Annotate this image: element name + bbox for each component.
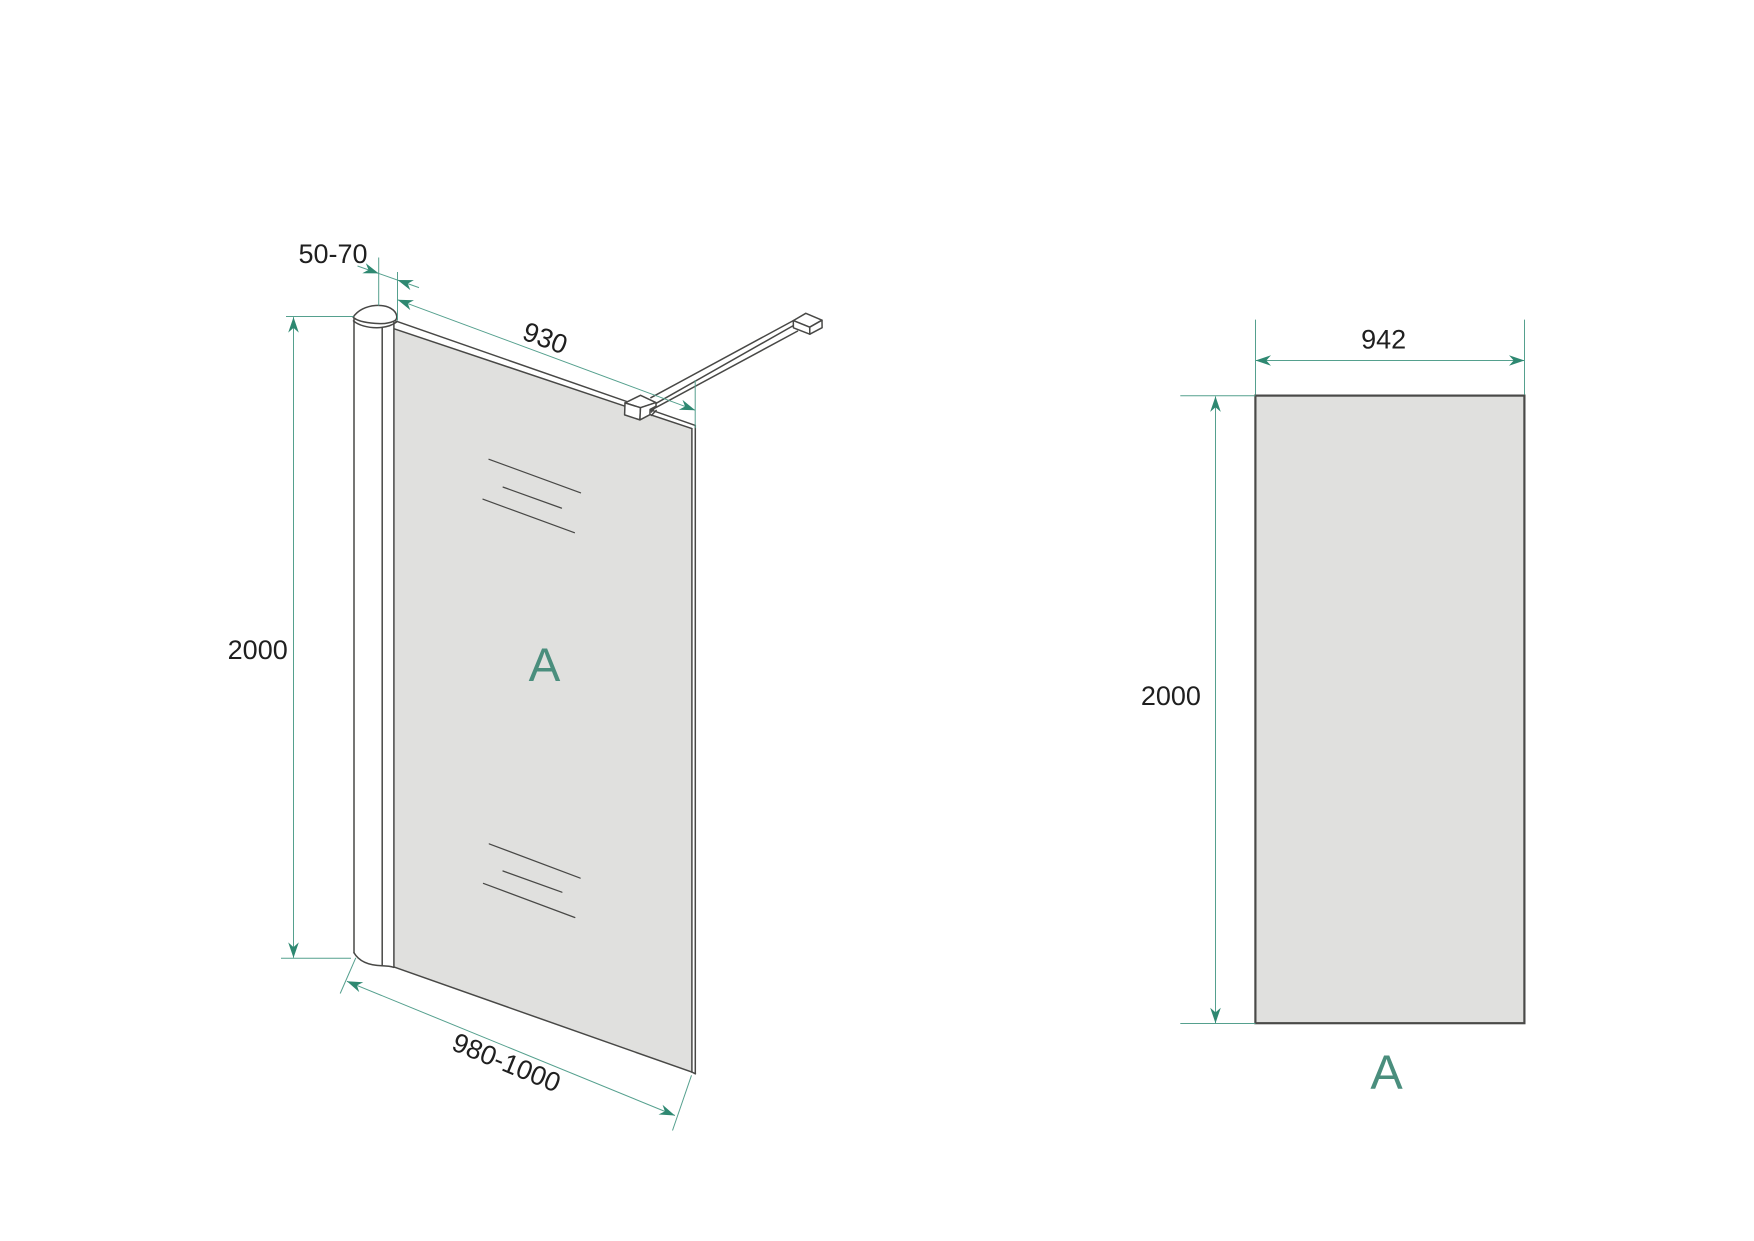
svg-text:A: A (1370, 1045, 1403, 1099)
svg-text:2000: 2000 (228, 635, 288, 665)
svg-text:2000: 2000 (1141, 681, 1201, 711)
svg-text:50-70: 50-70 (298, 239, 367, 269)
svg-text:942: 942 (1361, 325, 1406, 355)
svg-text:A: A (529, 639, 561, 692)
